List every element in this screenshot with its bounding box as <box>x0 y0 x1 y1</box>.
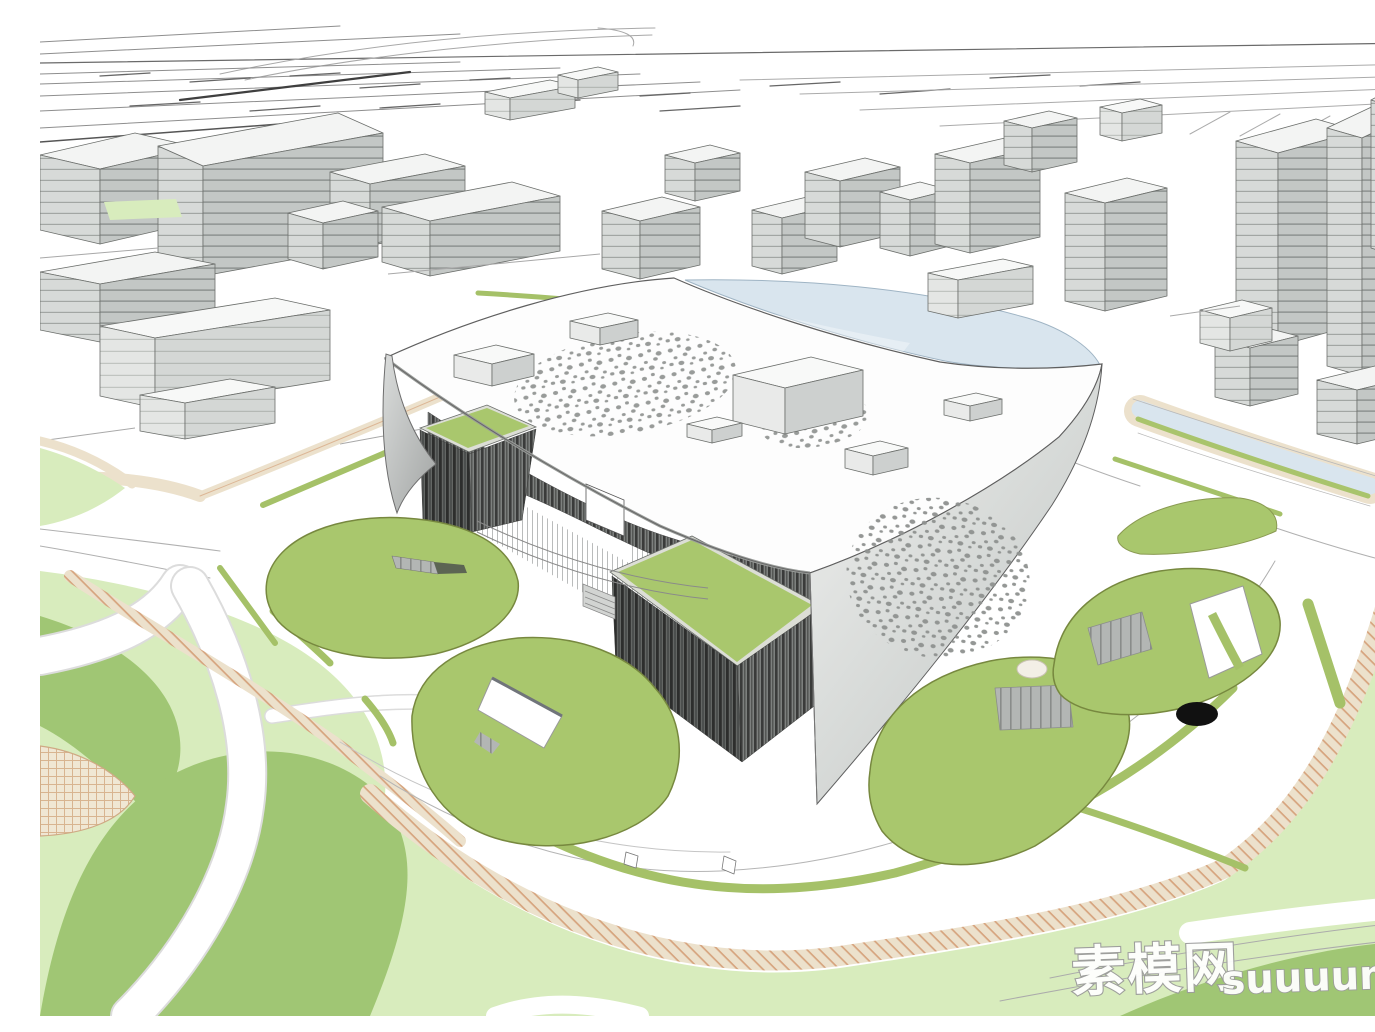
city-block <box>1004 111 1077 172</box>
city-block <box>1327 103 1375 376</box>
city-block <box>288 201 378 269</box>
scene-canvas: 素模网 suuuum.com <box>40 16 1375 1016</box>
watermark-cjk-text: 素模网 <box>1070 935 1240 1004</box>
city-block <box>1100 99 1162 141</box>
city-block <box>1371 90 1375 256</box>
skylight-dome <box>1017 660 1047 678</box>
architectural-rendering: 素模网 suuuum.com <box>40 16 1375 1016</box>
watermark-latin-text: suuuum.com <box>1221 948 1375 1004</box>
small-lawn-patch <box>104 199 182 220</box>
green-roof-block-a <box>420 405 536 532</box>
city-block <box>665 145 740 201</box>
city-block <box>1317 366 1375 444</box>
city-block <box>1200 300 1272 351</box>
ground-opening <box>1176 702 1218 726</box>
green-mound-northwest <box>266 518 518 659</box>
city-block <box>602 197 700 279</box>
city-block <box>1065 178 1167 311</box>
